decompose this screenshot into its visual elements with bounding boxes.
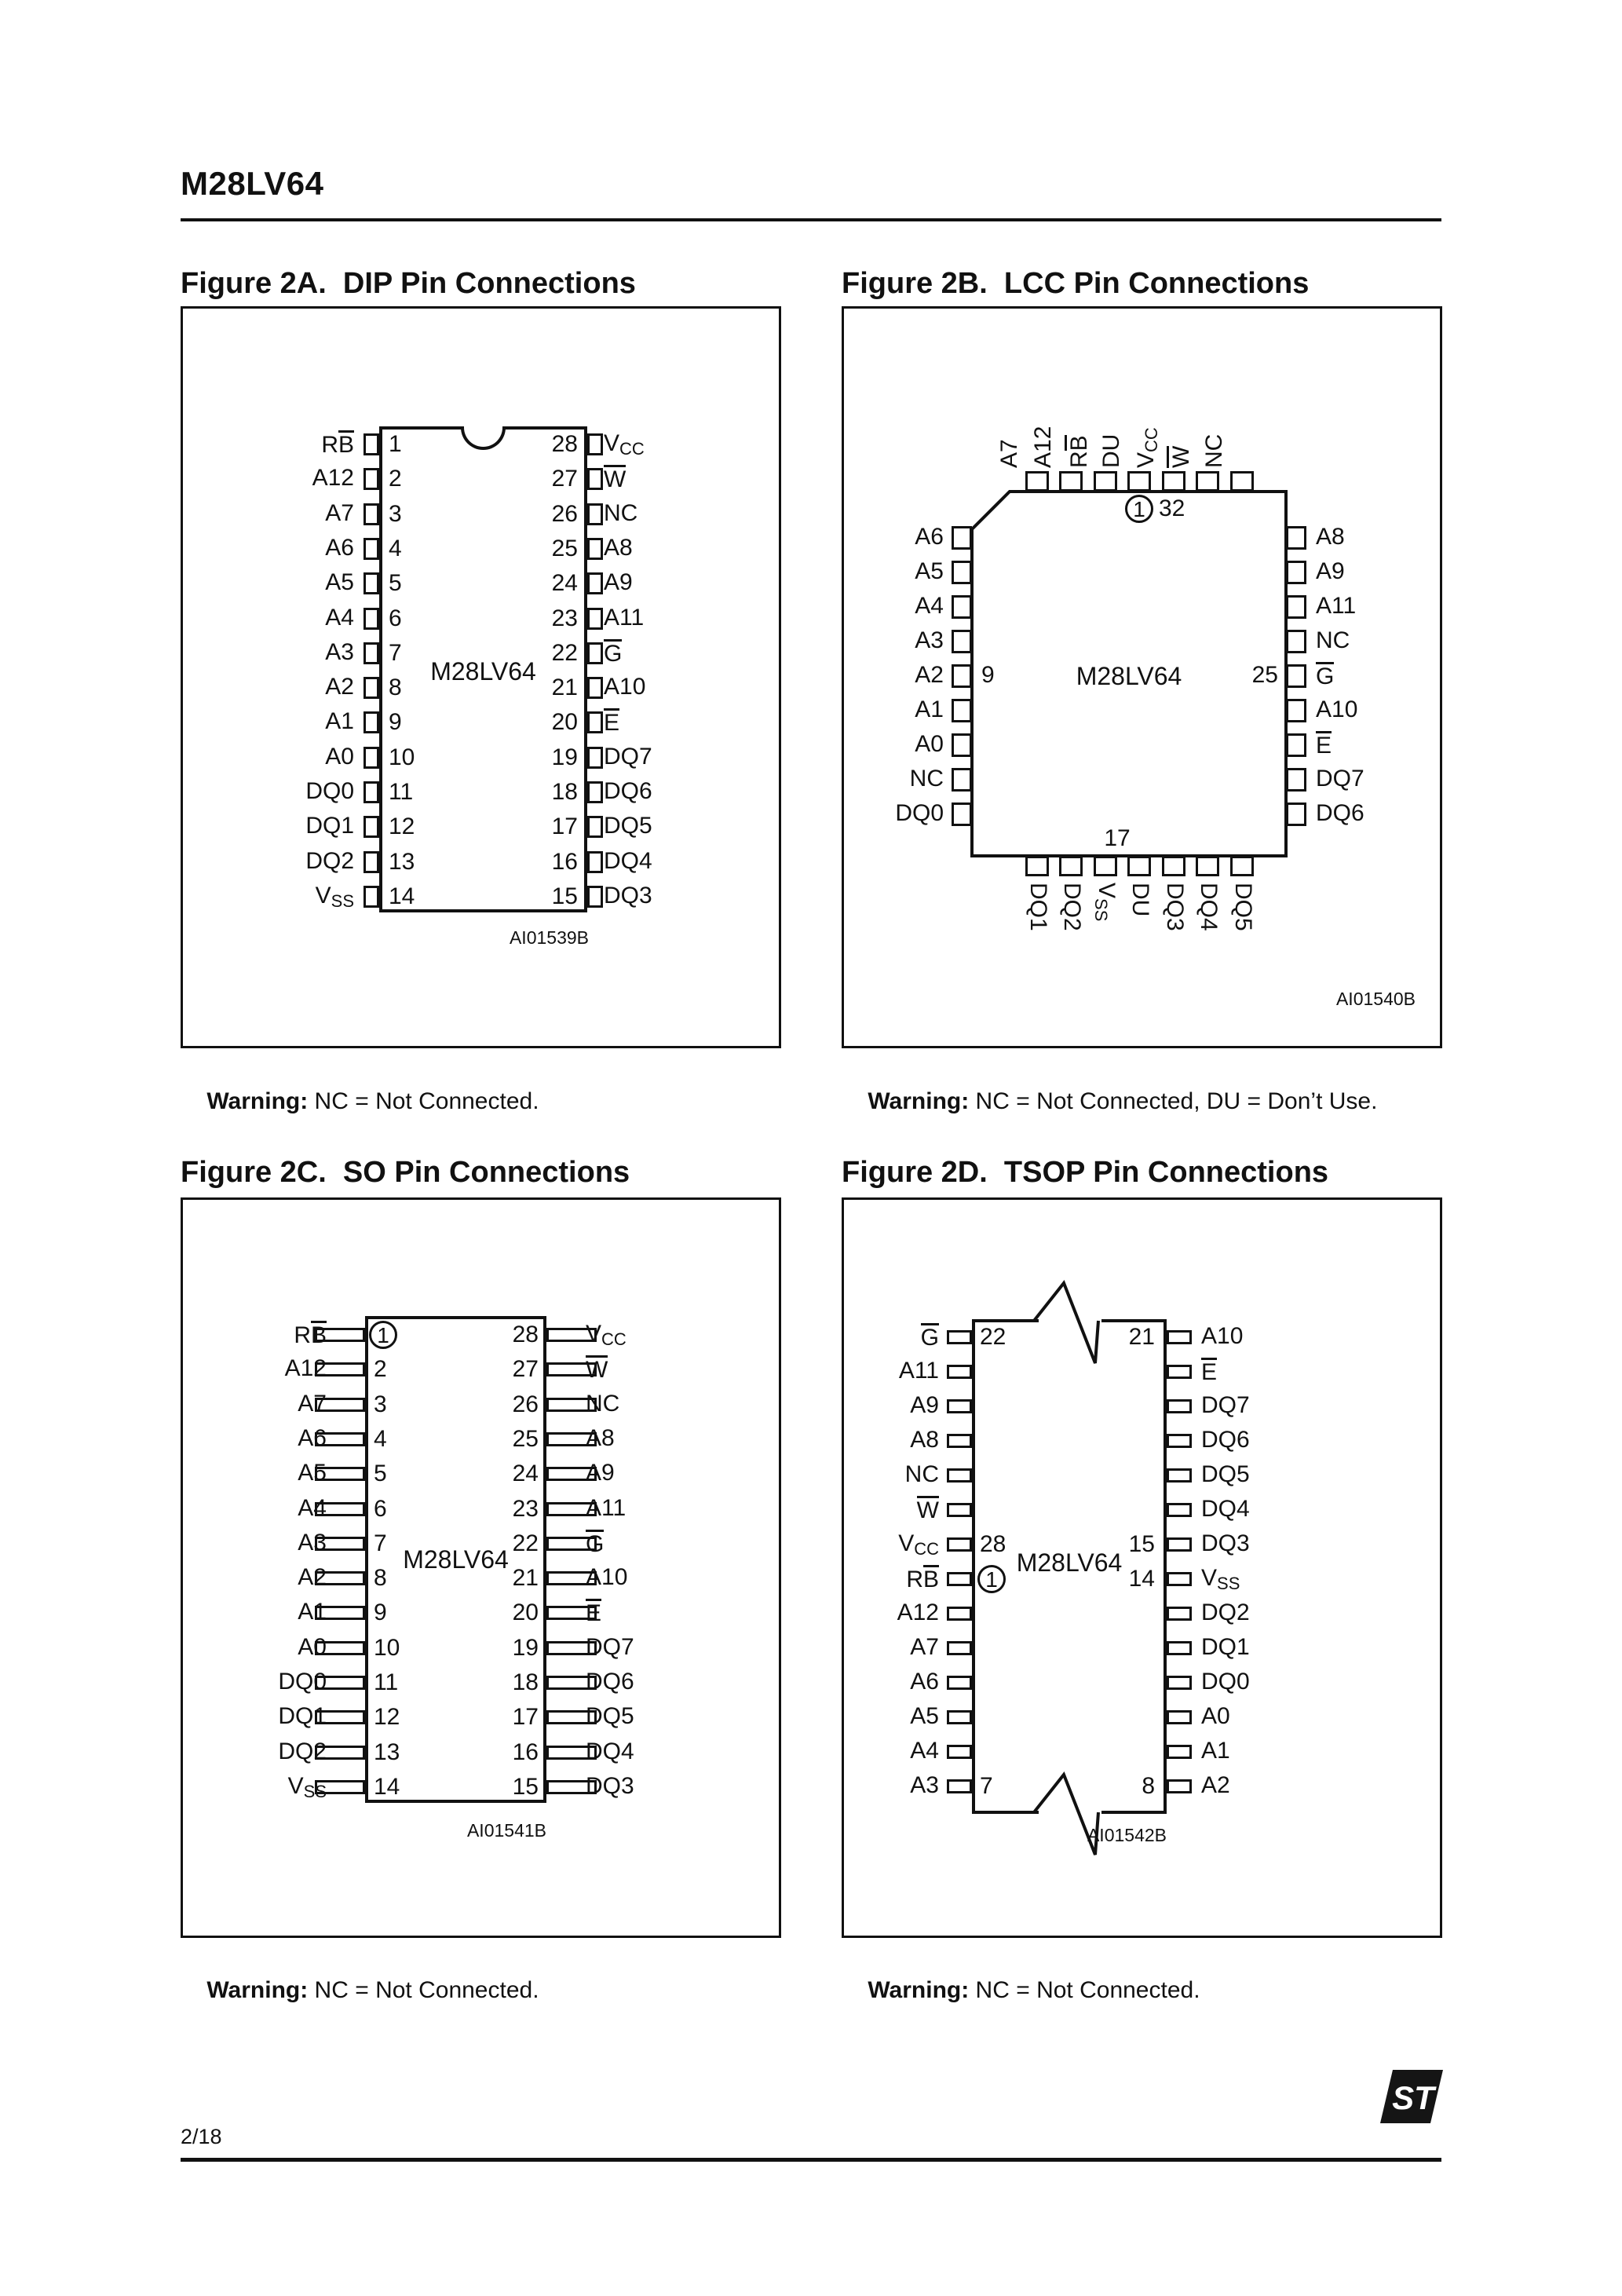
pin-label: W <box>844 1496 939 1524</box>
pin-label: A11 <box>586 1495 626 1522</box>
pin-label: RB <box>844 1565 939 1593</box>
pin-label: DQ5 <box>586 1703 634 1730</box>
warning-label: Warning: <box>206 1088 308 1114</box>
pin-label: A2 <box>185 1564 327 1591</box>
pin-stub <box>952 630 972 653</box>
pin-label: A9 <box>844 1392 939 1419</box>
pin-label: A6 <box>213 535 354 561</box>
pin-lead <box>947 1365 972 1379</box>
pin-stub <box>363 781 379 803</box>
pin-number: 22 <box>980 1324 1027 1351</box>
pin-number: 24 <box>484 570 578 597</box>
pin-label: DQ4 <box>1195 883 1222 931</box>
pin-label: A1 <box>844 696 944 723</box>
pin-stub <box>363 851 379 873</box>
figure-reference-code: AI01542B <box>970 1825 1167 1846</box>
pin-lead <box>947 1641 972 1655</box>
pin-label: DQ3 <box>586 1773 634 1800</box>
pin-lead <box>1167 1365 1192 1379</box>
pin-label: RB <box>213 430 354 459</box>
pin-label: NC <box>844 766 944 792</box>
pin-label: RB <box>185 1321 327 1349</box>
pin-number: 4 <box>389 536 451 562</box>
pin-lead <box>1167 1779 1192 1793</box>
pin-label: VCC <box>604 430 645 462</box>
pin-label: E <box>604 708 619 737</box>
pin-stub <box>587 677 603 699</box>
pin-stub <box>587 642 603 664</box>
warning-text: NC = Not Connected, DU = Don’t Use. <box>969 1088 1377 1114</box>
pin-number: 5 <box>374 1461 429 1487</box>
pin-number: 6 <box>389 605 451 632</box>
pin-stub <box>1162 856 1185 876</box>
pin-label: DQ4 <box>604 848 652 875</box>
pin-number: 1 <box>389 431 451 458</box>
pin-label: A8 <box>1316 524 1345 550</box>
pin-stub <box>363 503 379 525</box>
pin-stub <box>1230 856 1254 876</box>
pin-label: DQ5 <box>604 813 652 839</box>
pin-number: 17 <box>1094 825 1141 852</box>
pin-stub <box>1094 856 1117 876</box>
pin-label: DQ7 <box>586 1634 634 1661</box>
figure-2a-title: Figure 2A. DIP Pin Connections <box>181 267 636 301</box>
pin-number: 7 <box>980 1773 1027 1800</box>
pin-label: W <box>604 465 626 493</box>
pin-number: 15 <box>452 1774 539 1801</box>
pin-label: DQ1 <box>1201 1634 1250 1661</box>
pin-label: DQ3 <box>604 883 652 909</box>
pin-stub <box>1286 630 1306 653</box>
pin-label: A8 <box>586 1425 615 1452</box>
pin1-marker: 1 <box>369 1321 397 1349</box>
pin-number: 19 <box>452 1635 539 1662</box>
pin-number: 28 <box>484 431 578 458</box>
pin-number: 23 <box>484 605 578 632</box>
pin-label: A0 <box>213 744 354 770</box>
pin-lead <box>947 1468 972 1483</box>
pin-lead <box>947 1330 972 1344</box>
pin-stub <box>1230 471 1254 492</box>
pin-label: A10 <box>604 674 645 700</box>
pin-stub <box>363 468 379 490</box>
pin-number: 32 <box>1159 495 1222 522</box>
pin-label: A6 <box>844 524 944 550</box>
pin-label: VSS <box>1093 883 1120 921</box>
pin-stub <box>1196 856 1219 876</box>
pin-label: A3 <box>844 1772 939 1799</box>
pin-label: A6 <box>185 1425 327 1452</box>
pin-label: RB <box>1065 435 1091 468</box>
pin-label: DQ7 <box>604 744 652 770</box>
figure-2c-so-diagram: 1RB28VCC2A1227W3A726NC4A625A85A524A96A42… <box>181 1197 781 1938</box>
pin-stub <box>1094 471 1117 492</box>
pin-label: G <box>604 639 622 667</box>
pin-label: W <box>586 1355 608 1384</box>
pin-stub <box>587 572 603 594</box>
pin-number: 9 <box>389 709 451 736</box>
pin-number: 27 <box>484 466 578 492</box>
pin-number: 28 <box>452 1322 539 1348</box>
pin-number: 26 <box>484 501 578 528</box>
pin-number: 5 <box>389 570 451 597</box>
pin-stub <box>1286 768 1306 792</box>
pin-lead <box>1167 1710 1192 1724</box>
chip-name: M28LV64 <box>379 657 587 686</box>
pin-stub <box>952 664 972 688</box>
pin-label: A2 <box>844 662 944 689</box>
pin-lead <box>1167 1330 1192 1344</box>
pin-label: DU <box>1127 883 1153 916</box>
pin-label: A12 <box>185 1355 327 1382</box>
pin-stub <box>952 526 972 550</box>
warning-2d: Warning: NC = Not Connected. <box>842 1951 1200 2031</box>
pin-lead <box>947 1676 972 1690</box>
pin-stub <box>363 642 379 664</box>
pin-lead <box>1167 1676 1192 1690</box>
pin-label: A12 <box>213 465 354 492</box>
pin-number: 19 <box>484 744 578 771</box>
warning-2b: Warning: NC = Not Connected, DU = Don’t … <box>842 1062 1377 1142</box>
pin-label: A0 <box>1201 1703 1230 1730</box>
pin-label: DQ5 <box>1229 883 1256 931</box>
figure-2d-title: Figure 2D. TSOP Pin Connections <box>842 1156 1328 1190</box>
pin-label: DQ2 <box>185 1738 327 1765</box>
pin-number: 12 <box>374 1704 429 1731</box>
pin-number: 3 <box>389 501 451 528</box>
pin-label: VCC <box>1133 427 1160 468</box>
warning-label: Warning: <box>868 1977 969 2003</box>
pin-number: 9 <box>374 1600 429 1626</box>
pin-label: A8 <box>844 1427 939 1453</box>
pin-label: DQ1 <box>213 813 354 839</box>
pin-label: A0 <box>844 731 944 758</box>
pin-lead <box>947 1537 972 1552</box>
pin-stub <box>1286 664 1306 688</box>
pin-number: 13 <box>389 849 451 876</box>
pin-label: A4 <box>185 1495 327 1522</box>
pin-label: A11 <box>604 605 644 631</box>
pin-lead <box>947 1399 972 1413</box>
figure-reference-code: AI01541B <box>350 1820 546 1841</box>
pin-label: DQ1 <box>1025 883 1051 931</box>
pin-label: DQ0 <box>1201 1669 1250 1695</box>
pin-number: 17 <box>484 813 578 840</box>
pin-label: VSS <box>185 1773 327 1805</box>
pin-label: G <box>1316 662 1334 690</box>
pin-label: E <box>586 1599 601 1627</box>
pin-label: NC <box>1201 434 1228 468</box>
pin-lead <box>947 1572 972 1586</box>
pin-label: A0 <box>185 1634 327 1661</box>
pin-stub <box>1025 471 1049 492</box>
pin-number: 4 <box>374 1426 429 1453</box>
pin-lead <box>1167 1745 1192 1759</box>
pin-label: NC <box>844 1461 939 1488</box>
pin-lead <box>947 1434 972 1448</box>
pin-number: 25 <box>484 536 578 562</box>
page-number: 2/18 <box>181 2125 222 2149</box>
pin-label: A3 <box>213 639 354 666</box>
pin-stub <box>1025 856 1049 876</box>
pin-lead <box>947 1745 972 1759</box>
pin-label: DQ3 <box>1201 1530 1250 1557</box>
pin-lead <box>1167 1468 1192 1483</box>
edge-break-mark <box>1031 1278 1109 1366</box>
pin-stub <box>1059 471 1083 492</box>
pin-number: 21 <box>1076 1324 1155 1351</box>
datasheet-page: M28LV64 Figure 2A. DIP Pin Connections F… <box>0 0 1622 2296</box>
pin-stub <box>952 561 972 584</box>
pin-label: A9 <box>1316 558 1345 585</box>
pin-label: A5 <box>844 558 944 585</box>
pin-number: 20 <box>484 709 578 736</box>
header-rule <box>181 218 1441 221</box>
pin-label: A4 <box>844 1738 939 1764</box>
pin-number: 10 <box>389 744 451 771</box>
figure-2c-title: Figure 2C. SO Pin Connections <box>181 1156 630 1190</box>
pin-label: A4 <box>844 593 944 620</box>
pin-stub <box>363 608 379 630</box>
pin-label: DQ4 <box>586 1738 634 1765</box>
pin-label: A10 <box>1201 1323 1243 1350</box>
warning-text: NC = Not Connected. <box>308 1088 539 1114</box>
pin-label: A5 <box>185 1460 327 1486</box>
pin-number: 24 <box>452 1461 539 1487</box>
pin-stub <box>1286 699 1306 722</box>
pin-stub <box>363 538 379 560</box>
figure-2b-title: Figure 2B. LCC Pin Connections <box>842 267 1309 301</box>
pin-number: 18 <box>452 1669 539 1696</box>
pin1-marker: 1 <box>1125 495 1153 523</box>
pin-label: E <box>1201 1358 1217 1386</box>
pin-number: 27 <box>452 1356 539 1383</box>
pin-label: A7 <box>996 439 1023 468</box>
pin-label: DQ0 <box>844 800 944 827</box>
pin-number: 16 <box>452 1739 539 1766</box>
pin-stub <box>363 816 379 838</box>
pin-stub <box>363 886 379 908</box>
pin-label: A3 <box>844 627 944 654</box>
pin-label: G <box>844 1323 939 1351</box>
pin-stub <box>1286 595 1306 619</box>
pin-stub <box>1059 856 1083 876</box>
warning-2c: Warning: NC = Not Connected. <box>181 1951 539 2031</box>
pin-label: DQ7 <box>1316 766 1364 792</box>
pin-label: VCC <box>586 1321 627 1353</box>
warning-label: Warning: <box>868 1088 969 1114</box>
pin-stub <box>363 711 379 733</box>
pin-label: A3 <box>185 1530 327 1556</box>
pin-lead <box>1167 1503 1192 1517</box>
pin-label: A11 <box>1316 593 1356 620</box>
chip-name: M28LV64 <box>972 1548 1167 1578</box>
pin-stub <box>952 768 972 792</box>
pin-number: 2 <box>374 1356 429 1383</box>
figure-2b-lcc-diagram: A6A8A5A9A4A11A3NCA2GA1A10A0ENCDQ7DQ0DQ69… <box>842 306 1442 1048</box>
figure-reference-code: AI01539B <box>393 927 589 949</box>
pin-label: A11 <box>844 1358 939 1384</box>
pin-label: A5 <box>213 569 354 596</box>
pin-stub <box>363 572 379 594</box>
pin-label: DQ6 <box>586 1669 634 1695</box>
pin-stub <box>587 781 603 803</box>
pin-lead <box>1167 1607 1192 1621</box>
pin-label: VCC <box>844 1530 939 1563</box>
pin-stub <box>1127 856 1151 876</box>
pin-lead <box>1167 1572 1192 1586</box>
pin-label: DQ6 <box>1201 1427 1250 1453</box>
pin-number: 15 <box>484 883 578 910</box>
pin-lead <box>1167 1434 1192 1448</box>
pin-lead <box>947 1779 972 1793</box>
pin-stub <box>1196 471 1219 492</box>
pin-label: A10 <box>586 1564 627 1591</box>
pin-stub <box>587 851 603 873</box>
pin-number: 23 <box>452 1496 539 1523</box>
pin-stub <box>587 538 603 560</box>
pin-stub <box>587 468 603 490</box>
pin-stub <box>587 608 603 630</box>
figure-2d-tsop-diagram: G2221A10A11EA9DQ7A8DQ6NCDQ5WDQ4VCC2815DQ… <box>842 1197 1442 1938</box>
warning-label: Warning: <box>206 1977 308 2003</box>
figure-reference-code: AI01540B <box>1219 989 1416 1010</box>
pin-label: DQ0 <box>213 778 354 805</box>
figure-2a-dip-diagram: 1RB28VCC2A1227W3A726NC4A625A85A524A96A42… <box>181 306 781 1048</box>
pin-label: DQ5 <box>1201 1461 1250 1488</box>
pin-number: 18 <box>484 779 578 806</box>
pin-stub <box>587 503 603 525</box>
pin-number: 25 <box>452 1426 539 1453</box>
warning-text: NC = Not Connected. <box>969 1977 1200 2003</box>
pin-label: DQ1 <box>185 1703 327 1730</box>
pin-label: A8 <box>604 535 633 561</box>
pin-label: DQ2 <box>1201 1600 1250 1626</box>
pin-label: A7 <box>213 500 354 527</box>
pin-label: A2 <box>213 674 354 700</box>
warning-text: NC = Not Connected. <box>308 1977 539 2003</box>
pin-label: DQ7 <box>1201 1392 1250 1419</box>
pin-label: A6 <box>844 1669 939 1695</box>
warning-2a: Warning: NC = Not Connected. <box>181 1062 539 1142</box>
pin-label: NC <box>1316 627 1350 654</box>
pin-stub <box>587 711 603 733</box>
chip-name: M28LV64 <box>365 1545 546 1574</box>
pin-label: DQ6 <box>1316 800 1364 827</box>
pin-label: A7 <box>844 1634 939 1661</box>
pin-label: A1 <box>213 708 354 735</box>
pin-number: 11 <box>389 779 451 806</box>
pin-label: A9 <box>604 569 633 596</box>
pin-number: 20 <box>452 1600 539 1626</box>
pin-label: A2 <box>1201 1772 1230 1799</box>
pin-label: A7 <box>185 1391 327 1417</box>
pin-stub <box>1286 526 1306 550</box>
pin-lead <box>1167 1399 1192 1413</box>
pin-label: DQ2 <box>213 848 354 875</box>
pin-label: A12 <box>1030 426 1057 468</box>
chip-name: M28LV64 <box>972 662 1286 691</box>
page-title: M28LV64 <box>181 165 323 203</box>
pin-stub <box>952 595 972 619</box>
pin-label: VSS <box>213 883 354 915</box>
pin-label: G <box>586 1530 604 1558</box>
pin-label: A9 <box>586 1460 615 1486</box>
pin-lead <box>947 1710 972 1724</box>
pin-label: DQ3 <box>1161 883 1188 931</box>
pin-stub <box>952 733 972 757</box>
pin-label: A10 <box>1316 696 1357 723</box>
pin-stub <box>1162 471 1185 492</box>
pin-label: VSS <box>1201 1565 1240 1597</box>
pin-number: 3 <box>374 1391 429 1418</box>
pin-number: 12 <box>389 813 451 840</box>
footer-rule <box>181 2158 1441 2162</box>
pin-stub <box>952 803 972 826</box>
pin-label: DU <box>1098 434 1125 468</box>
pin-stub <box>587 747 603 769</box>
pin-stub <box>1286 803 1306 826</box>
pin-label: A12 <box>844 1600 939 1626</box>
st-logo-text: ST <box>1392 2079 1437 2116</box>
pin-lead <box>947 1503 972 1517</box>
pin-stub <box>952 699 972 722</box>
pin-number: 11 <box>374 1669 429 1696</box>
pin-number: 13 <box>374 1739 429 1766</box>
pin-stub <box>1286 733 1306 757</box>
pin-stub <box>587 433 603 455</box>
pin-label: NC <box>586 1391 619 1417</box>
pin-label: DQ4 <box>1201 1496 1250 1523</box>
pin-stub <box>1286 561 1306 584</box>
pin-number: 2 <box>389 466 451 492</box>
pin-stub <box>587 816 603 838</box>
pin-label: NC <box>604 500 637 527</box>
pin-number: 6 <box>374 1496 429 1523</box>
pin-label: DQ2 <box>1058 883 1085 931</box>
pin-label: A1 <box>185 1599 327 1625</box>
pin-lead <box>1167 1641 1192 1655</box>
pin-number: 16 <box>484 849 578 876</box>
pin-stub <box>363 677 379 699</box>
pin-lead <box>947 1607 972 1621</box>
pin-number: 14 <box>374 1774 429 1801</box>
pin-stub <box>363 747 379 769</box>
pin-stub <box>587 886 603 908</box>
pin-number: 8 <box>1076 1773 1155 1800</box>
pin-label: A5 <box>844 1703 939 1730</box>
pin-lead <box>1167 1537 1192 1552</box>
pin-label: A1 <box>1201 1738 1230 1764</box>
st-logo: ST <box>1379 2068 1445 2125</box>
pin-label: W <box>1167 446 1193 468</box>
pin-label: DQ0 <box>185 1669 327 1695</box>
pin-number: 10 <box>374 1635 429 1662</box>
pin-stub <box>1127 471 1151 492</box>
pin-label: E <box>1316 731 1332 759</box>
pin-stub <box>363 433 379 455</box>
pin-number: 14 <box>389 883 451 910</box>
pin-number: 26 <box>452 1391 539 1418</box>
pin-label: DQ6 <box>604 778 652 805</box>
pin-number: 17 <box>452 1704 539 1731</box>
pin-label: A4 <box>213 605 354 631</box>
